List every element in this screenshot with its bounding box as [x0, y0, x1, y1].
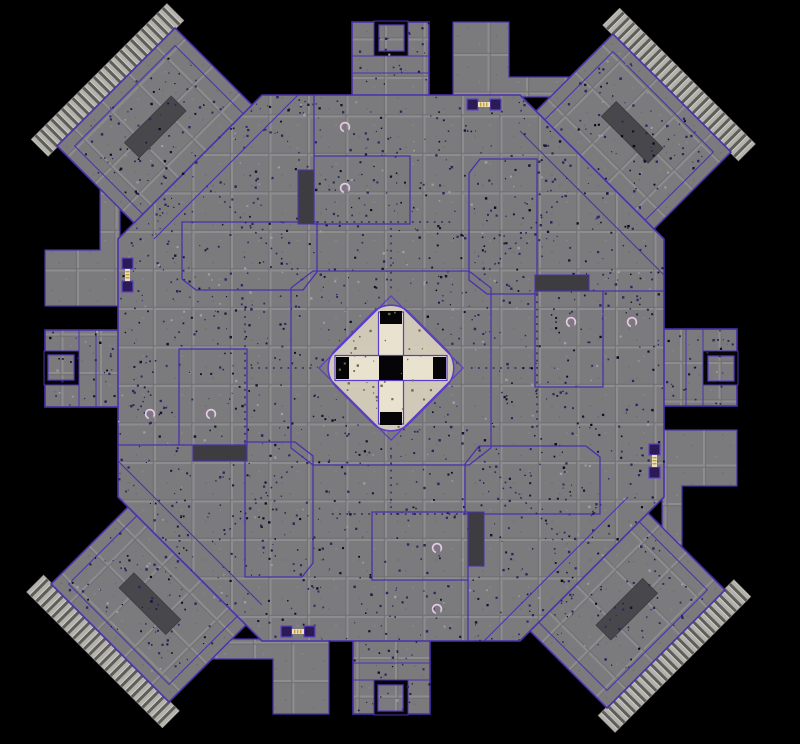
pad-square [304, 626, 315, 637]
edge-protrusion [352, 21, 429, 98]
game-viewport[interactable] [0, 0, 800, 744]
protrusion-inner-block [48, 355, 74, 380]
pad-square [649, 444, 660, 455]
cross-pit-west [336, 357, 349, 379]
dark-slot [193, 445, 247, 461]
edge-protrusion [353, 638, 430, 715]
dark-slot [535, 275, 589, 291]
cross-pit-north [380, 311, 402, 324]
cross-pit-south [380, 412, 402, 425]
protrusion-inner-block [379, 25, 404, 51]
pad-square [122, 258, 133, 269]
pad-square [490, 99, 501, 110]
pad-square [122, 281, 133, 292]
dark-slot [298, 170, 314, 224]
cross-pit-center [379, 356, 403, 380]
map-viewport[interactable] [0, 0, 800, 744]
pad-square [649, 467, 660, 478]
cross-pit-east [433, 357, 446, 379]
edge-protrusion [661, 329, 738, 406]
dark-slot [468, 512, 484, 566]
protrusion-inner-block [378, 685, 403, 711]
pad-square [467, 99, 478, 110]
protrusion-inner-block [708, 356, 734, 381]
pad-square [281, 626, 292, 637]
